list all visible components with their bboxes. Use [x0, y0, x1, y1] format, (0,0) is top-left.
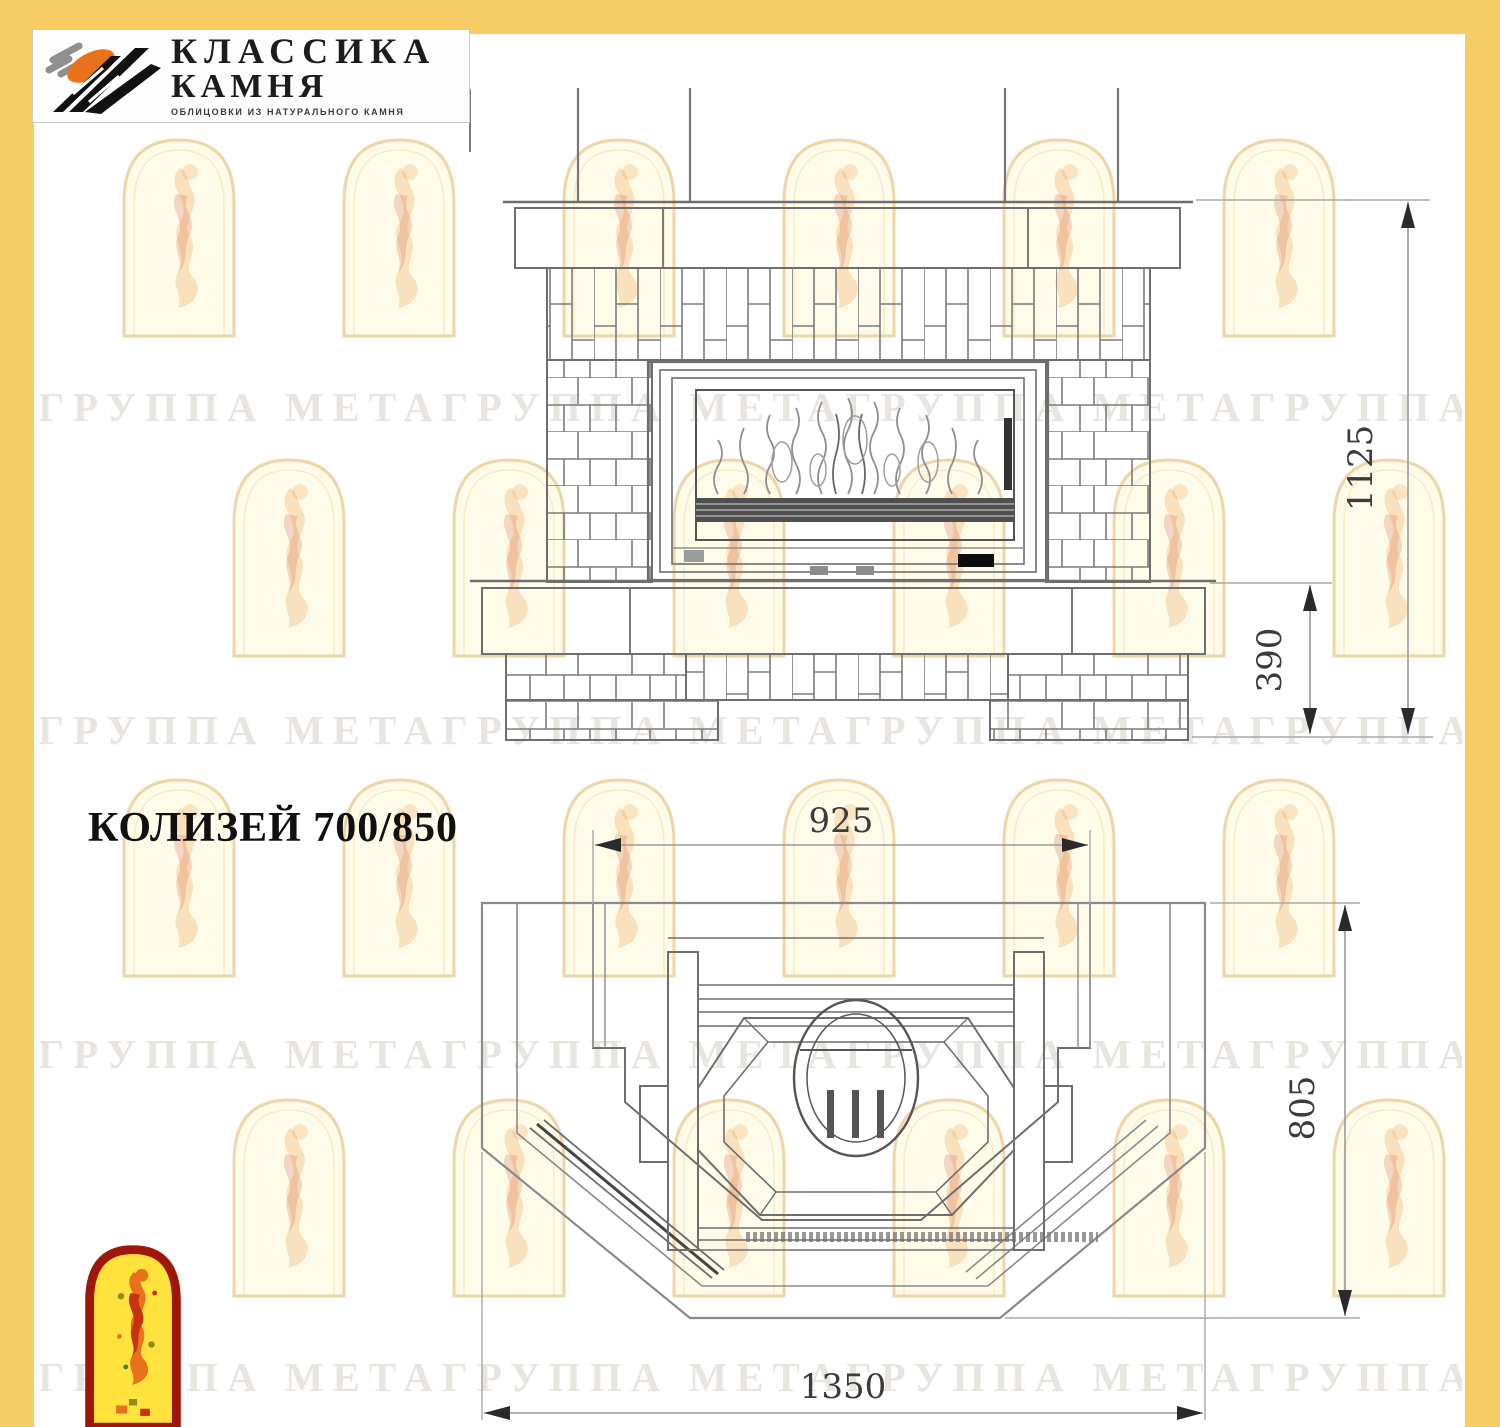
plan-firebox-insert	[640, 938, 1072, 1250]
dim-label-1125: 1125	[1341, 425, 1381, 512]
right-stone-column	[1046, 360, 1150, 582]
brand-logo: КЛАССИКА КАМНЯ ОБЛИЦОВКИ ИЗ НАТУРАЛЬНОГО…	[32, 29, 470, 123]
frieze-soldier-course	[547, 268, 1150, 360]
meta-arch-logo	[84, 1240, 182, 1427]
dim-label-390: 390	[1250, 628, 1290, 693]
plan-view-dimensions: 925 805 1350	[482, 801, 1360, 1420]
technical-drawing: 1125 390	[0, 0, 1500, 1427]
chimney-lines	[578, 88, 1118, 202]
left-stone-column	[547, 360, 652, 582]
front-view-dimensions: 1125 390	[1192, 200, 1433, 737]
plan-view-drawing	[482, 903, 1205, 1318]
plan-outer-platform	[482, 903, 1205, 1318]
flames-art	[714, 398, 982, 494]
firebox-insert	[648, 362, 1048, 580]
dim-label-1350: 1350	[800, 1367, 887, 1407]
ash-latch	[958, 554, 994, 567]
model-title: КОЛИЗЕЙ 700/850	[88, 804, 458, 852]
door-handle	[1004, 418, 1012, 490]
dimension-depth: 805	[1005, 903, 1360, 1318]
brand-logo-icon	[39, 34, 167, 118]
dim-label-925: 925	[809, 801, 874, 841]
dim-label-805: 805	[1283, 1076, 1323, 1141]
hearth-shelf	[470, 581, 1216, 654]
dimension-height-total: 1125	[1192, 200, 1433, 737]
base-plinth	[506, 654, 1188, 740]
mantel-shelf	[503, 202, 1193, 268]
brand-name-line1: КЛАССИКА	[171, 32, 467, 70]
brand-subtitle: ОБЛИЦОВКИ ИЗ НАТУРАЛЬНОГО КАМНЯ	[171, 107, 467, 117]
drawing-sheet: ГРУППА МЕТАГРУППА МЕТАГРУППА МЕТАГРУППА …	[0, 0, 1500, 1427]
dimension-height-hearth: 390	[1210, 583, 1332, 734]
front-view-drawing	[452, 88, 1216, 740]
brand-name-line2: КАМНЯ	[171, 70, 467, 104]
